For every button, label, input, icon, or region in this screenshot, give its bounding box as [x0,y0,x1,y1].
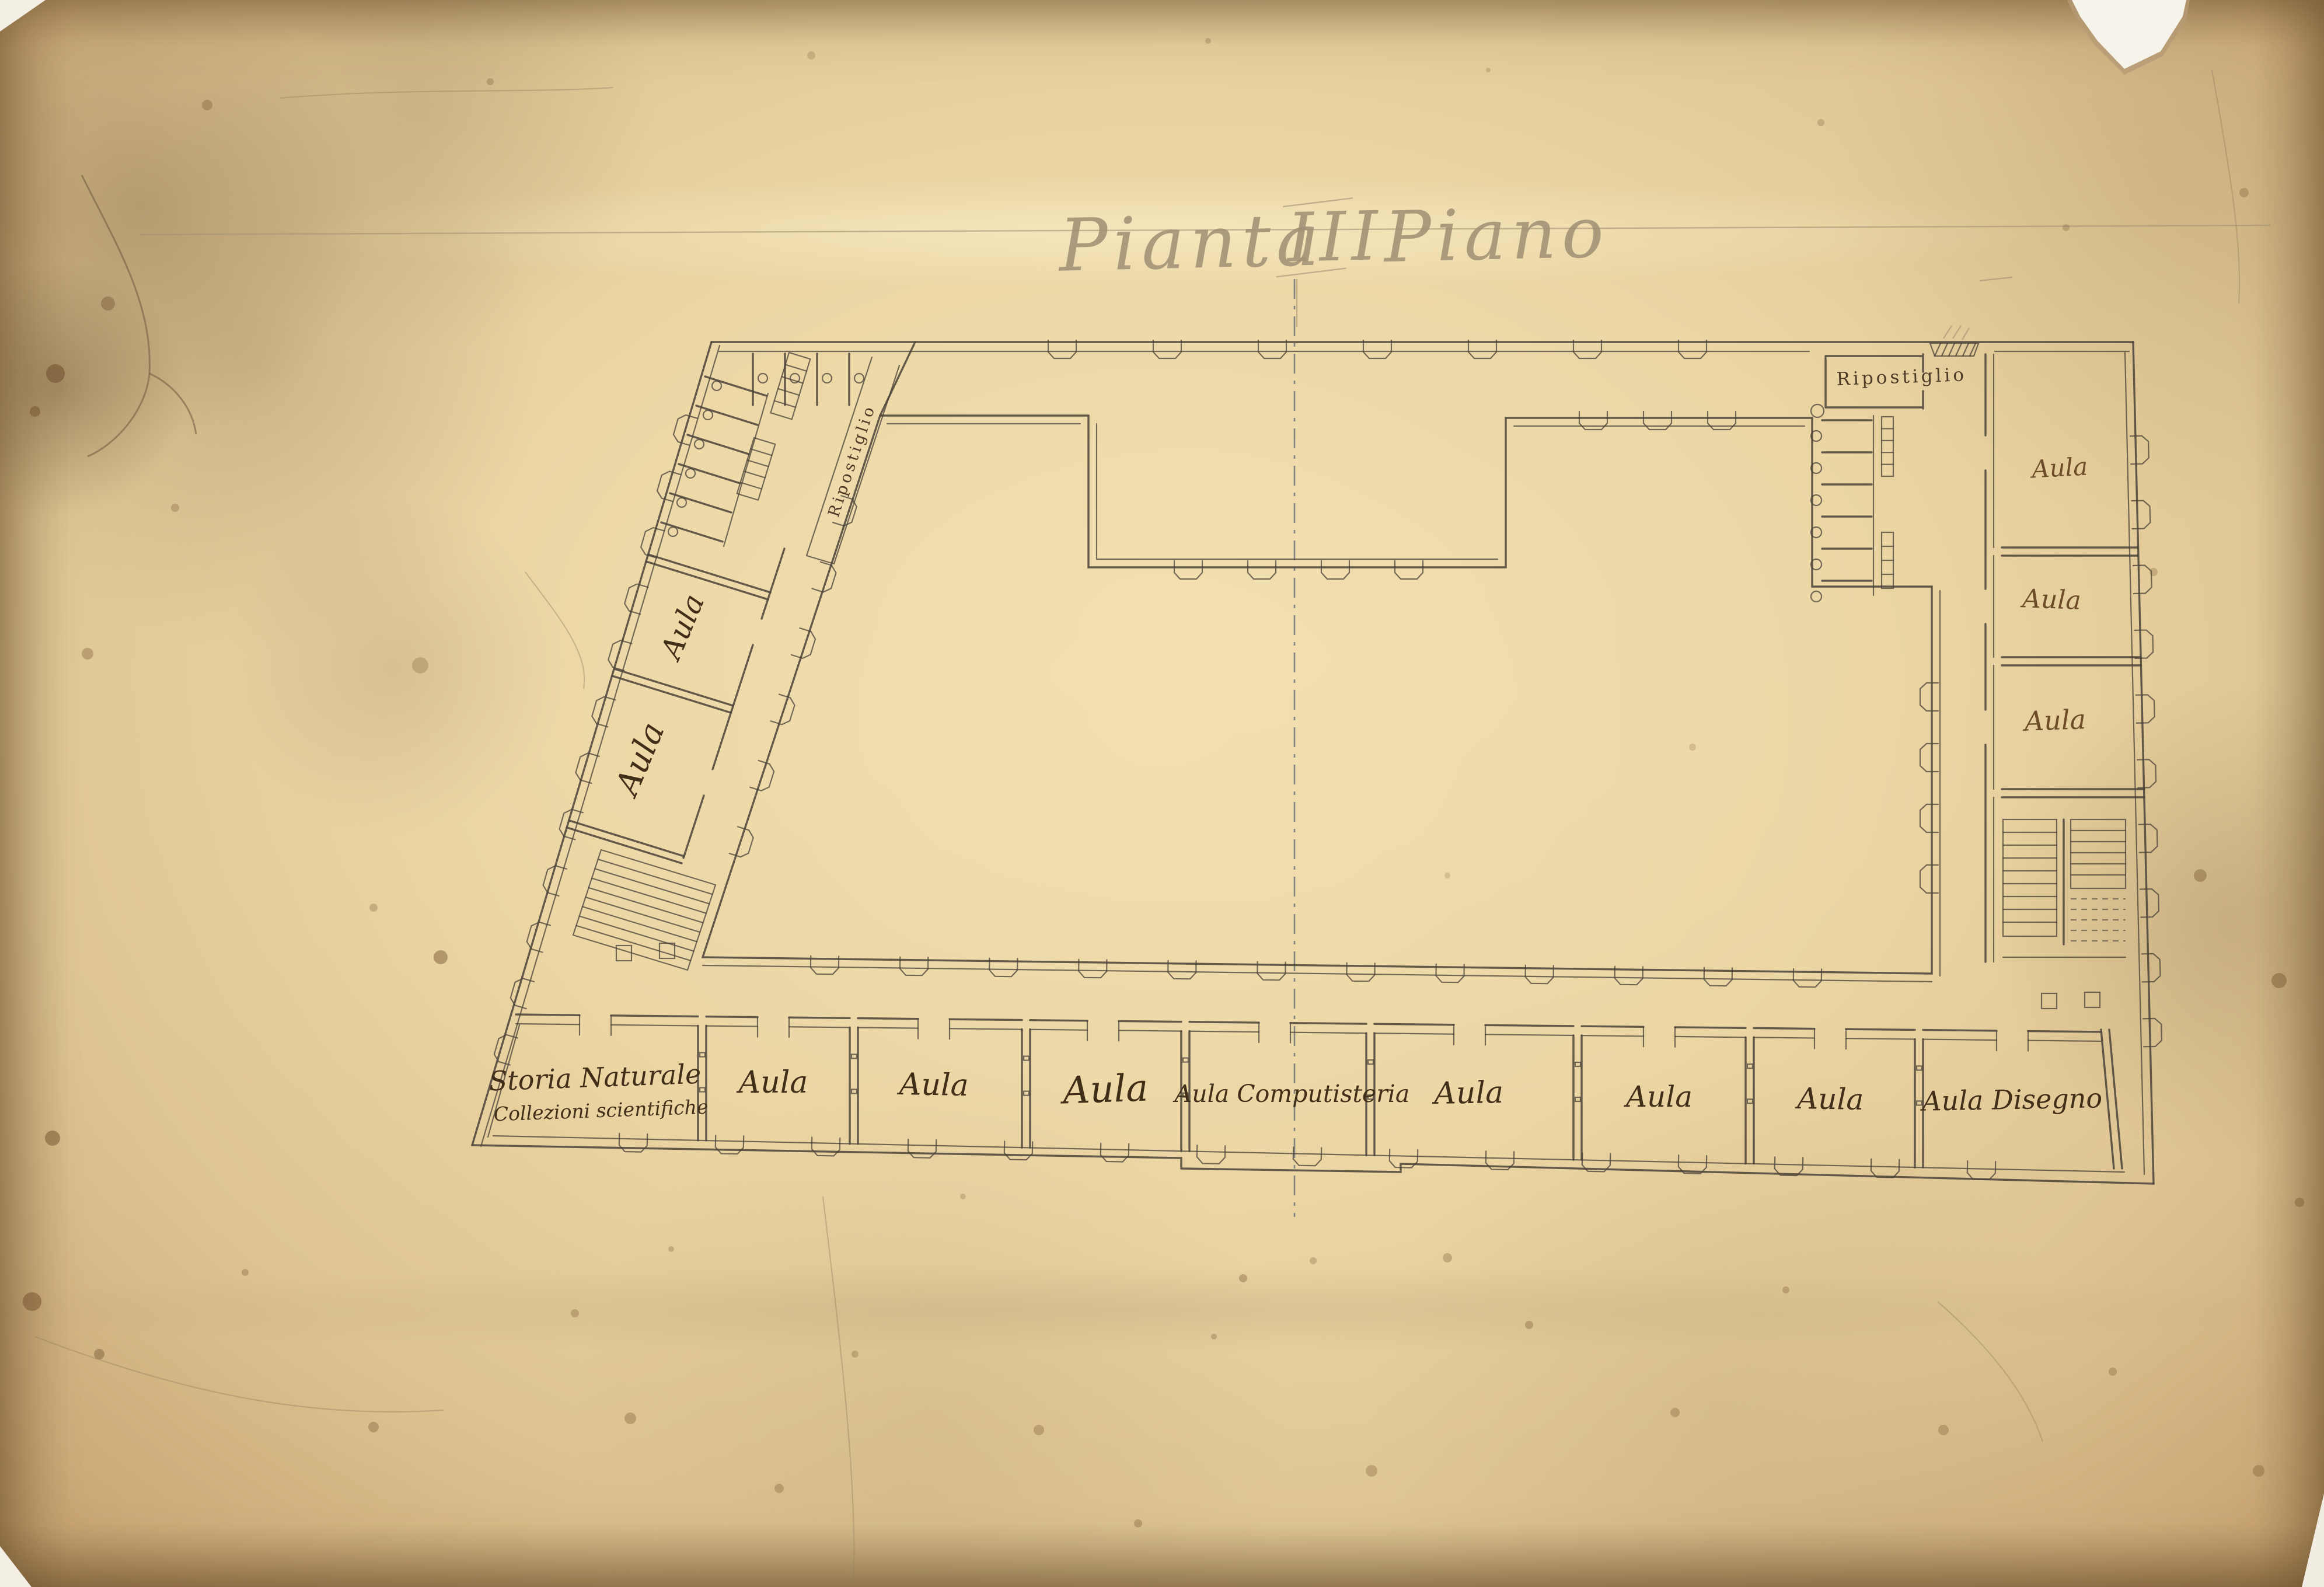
room-label-collezioni: Collezioni scientifiche [493,1096,709,1126]
room-label-computisteria: Aula Computisteria [1173,1080,1410,1108]
room-label-left-wing-aula-lower: Aula [607,717,672,803]
room-label-aula-6: Aula [1795,1082,1864,1117]
room-label-aula-disegno: Aula Disegno [1920,1082,2103,1117]
building-walls [472,342,2154,1184]
title-word-pianta: Pianta [1057,198,1325,288]
room-label-right-wing-aula-2: Aula [2019,584,2081,616]
title-word-piano: Piano [1382,192,1610,278]
room-label-aula-4: Aula [1432,1075,1504,1111]
room-label-storia-naturale: Storia Naturale [488,1058,702,1097]
scanned-floor-plan-sheet: Pianta III Piano [0,0,2324,1587]
drawing-title: Pianta III Piano [1057,191,1610,288]
room-label-aula-5: Aula [1624,1080,1693,1114]
room-labels: Storia Naturale Collezioni scientifiche … [488,364,2103,1125]
room-label-aula-1: Aula [737,1065,808,1100]
room-label-ripostiglio-top: Ripostiglio [1836,364,1967,390]
room-label-right-wing-aula-1: Aula [2029,452,2088,484]
room-label-aula-3: Aula [1059,1066,1149,1112]
room-label-left-wing-aula-upper: Aula [653,590,711,666]
floor-plan-drawing: Pianta III Piano [0,0,2324,1587]
room-label-right-wing-aula-3: Aula [2022,703,2086,737]
room-label-aula-2: Aula [896,1067,969,1103]
title-numeral: III [1285,197,1384,278]
